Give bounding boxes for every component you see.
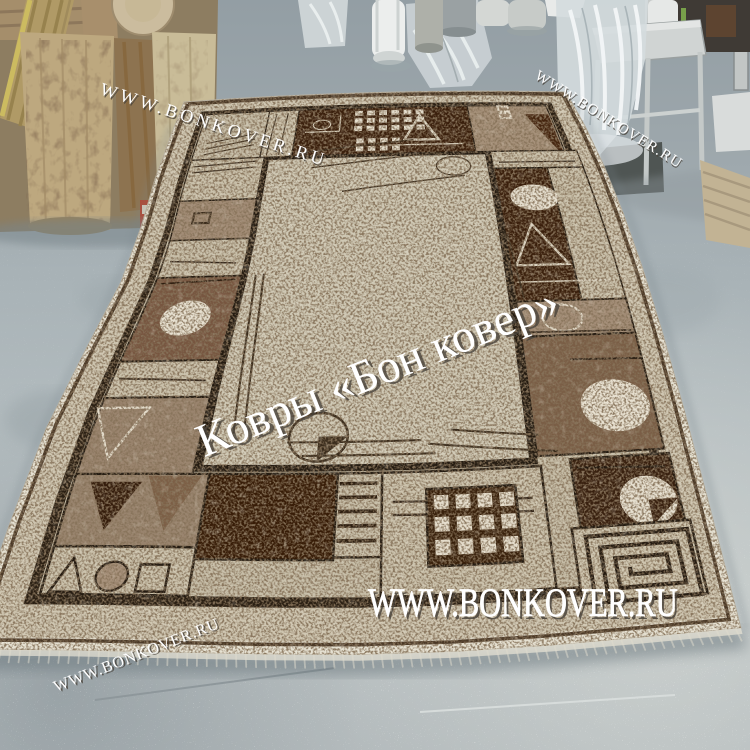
svg-text:WWW.BONKOVER.RU: WWW.BONKOVER.RU — [368, 580, 678, 625]
